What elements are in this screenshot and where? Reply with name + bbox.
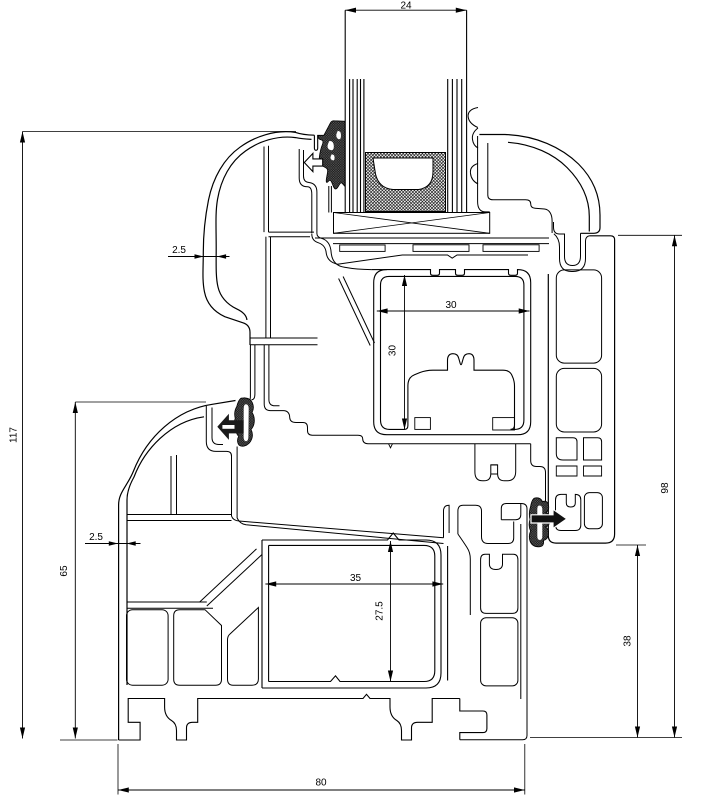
svg-text:38: 38 <box>623 635 634 647</box>
svg-text:2.5: 2.5 <box>89 532 103 543</box>
svg-text:30: 30 <box>445 300 457 311</box>
svg-text:65: 65 <box>59 565 70 577</box>
svg-text:2.5: 2.5 <box>172 245 186 256</box>
svg-text:117: 117 <box>9 427 20 443</box>
svg-text:27.5: 27.5 <box>375 601 386 621</box>
svg-text:98: 98 <box>660 482 671 494</box>
svg-text:35: 35 <box>350 573 362 584</box>
svg-text:80: 80 <box>315 778 327 789</box>
svg-text:30: 30 <box>388 345 399 357</box>
